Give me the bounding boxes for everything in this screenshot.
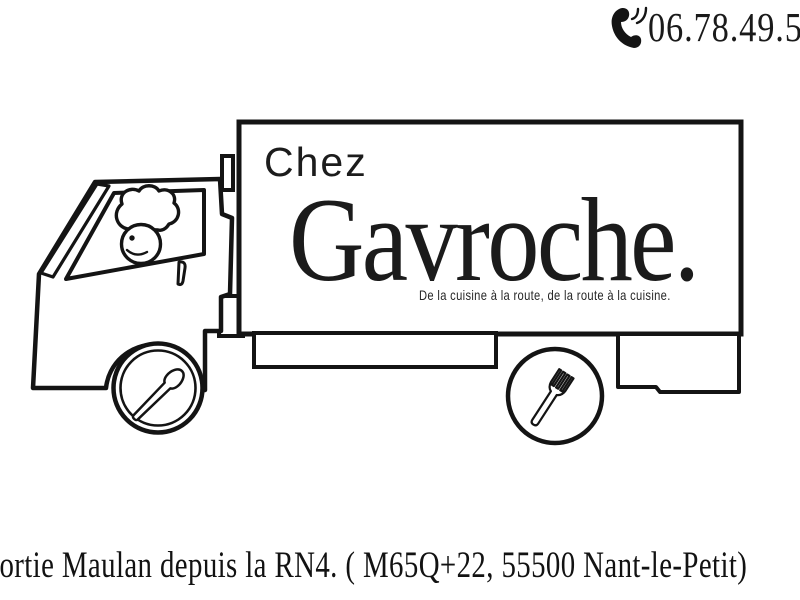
phone-number: 06.78.49.5 [648,3,800,51]
sign-tagline: De la cuisine à la route, de la route à … [419,287,671,303]
flyer-canvas: 06.78.49.5 Chez Gavroche. De la cuisine … [0,0,800,600]
chef-eye [129,235,134,240]
chef-face [122,225,161,264]
rear-wheel [508,349,602,443]
door-handle [178,262,185,285]
rear-bumper-panel [618,334,739,392]
footer-directions: Sortie Maulan depuis la RN4. ( M65Q+22, … [0,544,747,587]
front-wheel [114,344,203,433]
phone-handset-icon [612,8,646,48]
side-skirt-panel [254,333,496,367]
chef-hat [116,186,178,231]
exhaust-stack [222,156,233,190]
